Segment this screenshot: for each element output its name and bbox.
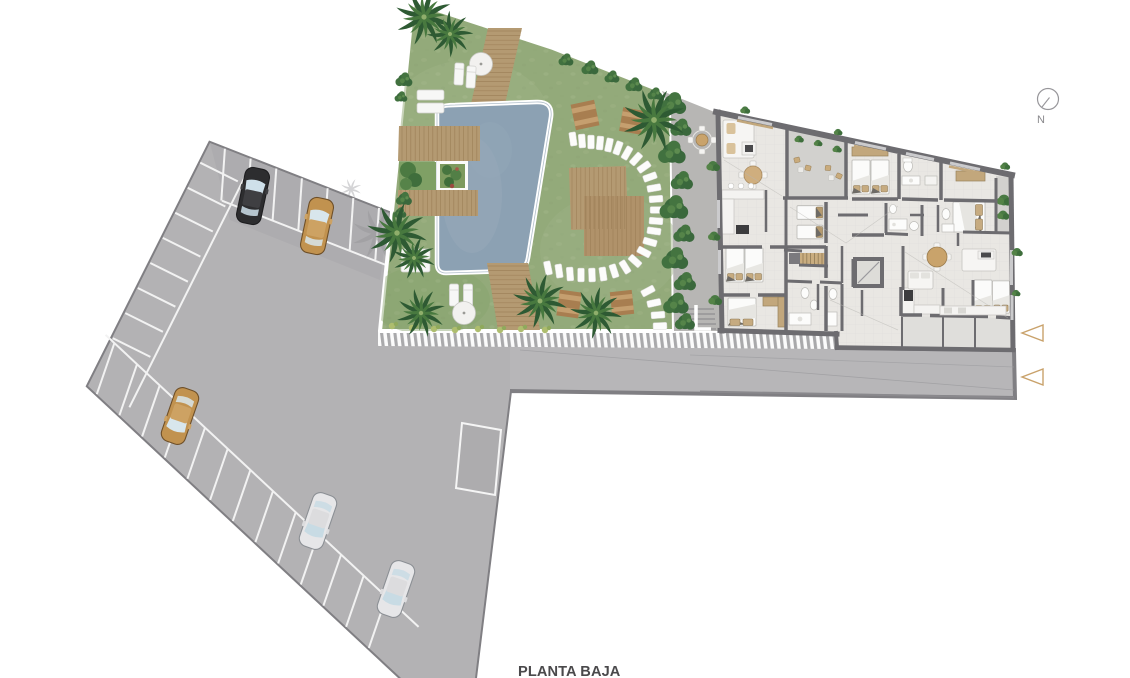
svg-text:N: N [1037, 114, 1045, 126]
svg-text:PLANTA BAJA: PLANTA BAJA [518, 664, 621, 678]
